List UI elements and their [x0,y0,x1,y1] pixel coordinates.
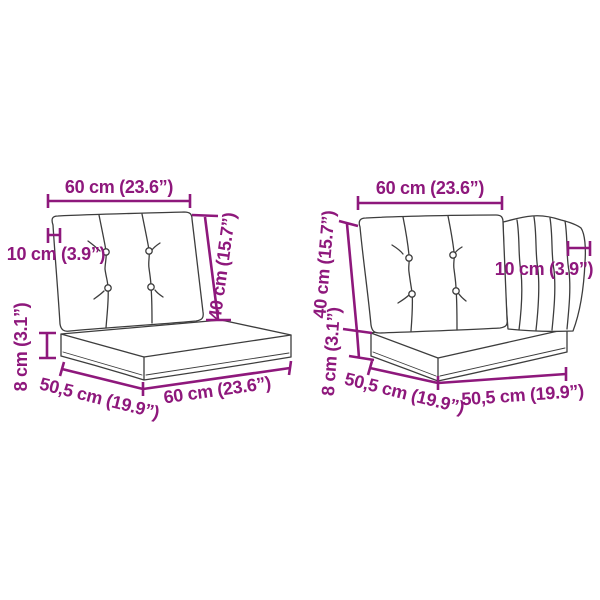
left-seat-piping-seam [63,352,289,375]
button [148,284,154,290]
button [450,252,456,258]
right-seat-thickness-dimension-line [343,329,374,360]
right-seat-thickness-label: 8 cm (3.1”) [318,306,344,396]
left-seat-depth-label: 50,5 cm (19.9”) [38,374,162,423]
left-figure-sketch [52,212,291,380]
right-top-width-label: 60 cm (23.6”) [376,178,484,198]
left-seat-thickness-dimension-line [39,333,56,358]
left-back-height-label: 40 cm (15.7”) [205,211,240,321]
left-seat-thickness-label: 8 cm (3.1”) [11,302,31,391]
right-back-thickness-label: 10 cm (3.9”) [495,259,594,279]
right-seat-depth-right-label: 50,5 cm (19.9”) [461,381,585,410]
right-seat-depth-right-dimension-line [438,367,566,383]
diagram-svg: 60 cm (23.6”) 10 cm (3.9”) 40 cm (15.7”)… [0,0,600,600]
left-figure: 60 cm (23.6”) 10 cm (3.9”) 40 cm (15.7”)… [7,177,291,423]
right-figure-sketch [359,215,585,381]
right-front-back-cushion-outline [359,215,507,333]
right-figure: 60 cm (23.6”) 40 cm (15.7”) 8 cm (3.1”) … [309,178,593,418]
right-seat-piping-seam [373,348,565,376]
left-top-width-label: 60 cm (23.6”) [65,177,173,197]
left-back-cushion-outline [52,212,203,331]
button [453,288,459,294]
product-dimension-diagram: 60 cm (23.6”) 10 cm (3.9”) 40 cm (15.7”)… [0,0,600,600]
right-back-height-label: 40 cm (15.7”) [309,209,338,319]
button [105,285,111,291]
button [146,248,152,254]
left-back-thickness-label: 10 cm (3.9”) [7,244,106,264]
button [409,291,415,297]
button [406,255,412,261]
right-top-width-dimension-line [358,196,502,210]
